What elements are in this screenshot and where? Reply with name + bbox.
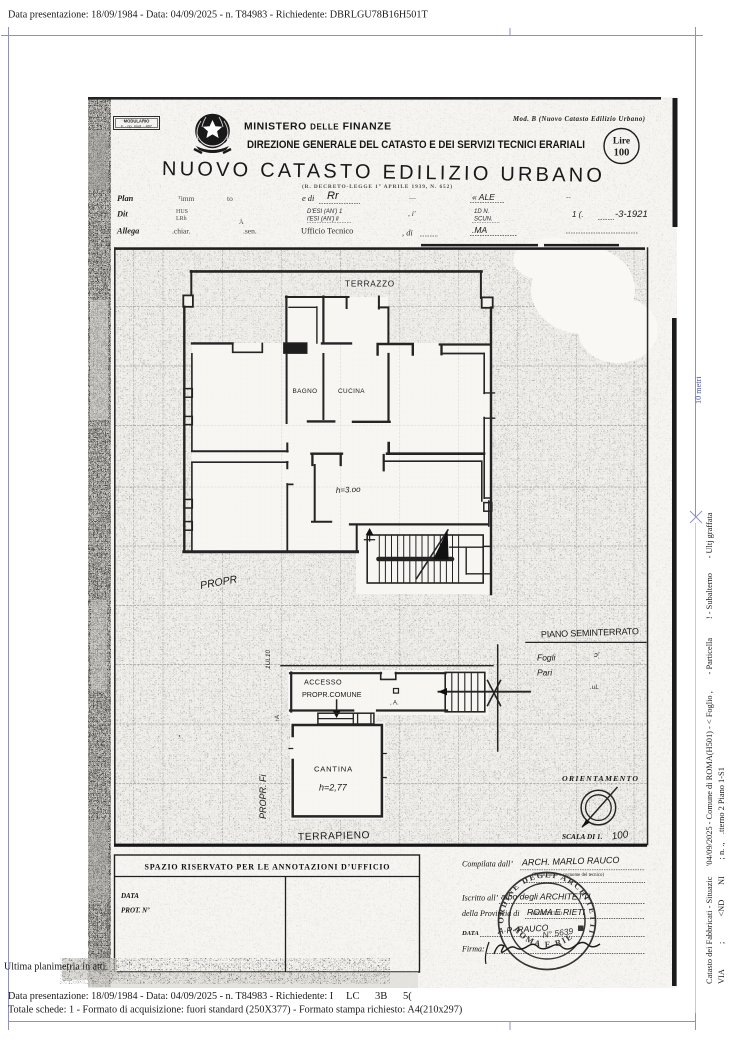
svg-text:.MA: .MA: [472, 225, 487, 235]
svg-text:MODULARIO: MODULARIO: [124, 119, 151, 124]
svg-text:VIA ; <N: VIA ; <ND NI ; n. ., .tterno 2 Piano 1-S…: [717, 767, 726, 984]
svg-text:Catasto dei Fabbricati - Situa: Catasto dei Fabbricati - Situazic '04/09…: [705, 512, 714, 984]
svg-text:ARCHITETTO: ARCHITETTO: [531, 912, 563, 917]
svg-text:ACCESSO: ACCESSO: [304, 678, 342, 687]
svg-text:(R. DECRETO-LEGGE 1° APRILE 19: (R. DECRETO-LEGGE 1° APRILE 1939, N. 652…: [302, 183, 452, 190]
svg-text:LRh: LRh: [176, 216, 187, 222]
svg-text:Allega: Allega: [116, 227, 139, 236]
svg-text:e di: e di: [302, 194, 315, 203]
svg-text:PROT. Nº: PROT. Nº: [121, 907, 150, 915]
svg-text:IV A UFFICIO TECNICO ROMA: IV A UFFICIO TECNICO ROMA: [106, 899, 111, 958]
svg-text:Totale schede: 1 - Formato di: Totale schede: 1 - Formato di acquisizio…: [8, 1005, 462, 1016]
svg-text:1D N.: 1D N.: [474, 209, 489, 215]
svg-text:l'ESI (AN') li: l'ESI (AN') li: [307, 217, 339, 223]
svg-text:LC: LC: [346, 991, 360, 1002]
svg-text:Lire: Lire: [613, 137, 630, 147]
svg-text:, i': , i': [408, 209, 416, 218]
svg-text:Data presentazione: 18/09/1984: Data presentazione: 18/09/1984 - Data: 0…: [8, 991, 334, 1002]
svg-text:-3-1921: -3-1921: [615, 209, 648, 220]
svg-text:Compilata dall’: Compilata dall’: [462, 860, 513, 869]
svg-text:TERRAZZO: TERRAZZO: [345, 280, 395, 289]
svg-text:h=2,77: h=2,77: [319, 783, 348, 793]
svg-text:SPAZIO RISERVATO PER LE ANNOTA: SPAZIO RISERVATO PER LE ANNOTAZIONI D’UF…: [145, 863, 390, 872]
svg-text:D'ESI (AN') 1: D'ESI (AN') 1: [307, 209, 342, 215]
svg-text:CANTINA: CANTINA: [314, 765, 353, 774]
svg-text:Å: Å: [239, 218, 244, 226]
svg-text:h=3.oo: h=3.oo: [336, 485, 362, 495]
svg-text:.chiar.: .chiar.: [172, 227, 190, 236]
svg-text:SCALA DI 1.: SCALA DI 1.: [562, 832, 603, 841]
svg-text:Dit: Dit: [116, 210, 128, 219]
svg-text:Fogli: Fogli: [537, 653, 557, 663]
svg-text:↑A: ↑A: [275, 715, 281, 722]
svg-text:F. - rip. mod. - 497: F. - rip. mod. - 497: [121, 124, 152, 128]
svg-text:Pari: Pari: [537, 668, 553, 678]
svg-text:TERRAPIENO: TERRAPIENO: [298, 830, 370, 843]
svg-text:to: to: [227, 194, 233, 203]
svg-text:1 (.: 1 (.: [572, 210, 584, 219]
svg-text:MINISTERO DELLE FINANZE: MINISTERO DELLE FINANZE: [244, 122, 391, 133]
svg-text:5(: 5(: [403, 991, 412, 1002]
svg-text:Iscritto all’: Iscritto all’: [461, 894, 499, 903]
svg-text:DIREZIONE GENERALE DEL CATASTO: DIREZIONE GENERALE DEL CATASTO E DEI SER…: [247, 139, 585, 151]
svg-text:BAGNO: BAGNO: [292, 388, 317, 395]
svg-text:—: —: [408, 194, 417, 202]
svg-text:100: 100: [614, 148, 630, 159]
svg-text:10 metri: 10 metri: [694, 376, 703, 404]
svg-text:ᵀimm: ᵀimm: [178, 194, 195, 203]
svg-text:ɔ': ɔ': [594, 650, 600, 659]
svg-text:Mod. B (Nuovo Catasto Edilizio: Mod. B (Nuovo Catasto Edilizio Urbano): [512, 116, 645, 123]
svg-text:PROPR. Fi: PROPR. Fi: [258, 773, 268, 819]
svg-text:1UL10: 1UL10: [265, 649, 272, 669]
svg-text:CUCINA: CUCINA: [338, 388, 365, 395]
svg-text:--: --: [566, 193, 571, 201]
svg-text:Ultima planimetria in atti: Ultima planimetria in atti: [4, 962, 106, 973]
svg-text:SCUN.: SCUN.: [474, 217, 493, 223]
svg-text:ORIENTAMENTO: ORIENTAMENTO: [562, 774, 638, 783]
svg-text:.sen.: .sen.: [243, 227, 257, 236]
svg-text:PROPR.COMUNE: PROPR.COMUNE: [302, 690, 362, 699]
svg-text:Rr: Rr: [327, 190, 340, 202]
svg-text:, di: , di: [402, 229, 413, 238]
svg-text:Data presentazione: 18/09/1984: Data presentazione: 18/09/1984 - Data: 0…: [8, 10, 428, 21]
svg-text:Firma:: Firma:: [461, 945, 485, 954]
svg-text:Plan: Plan: [117, 194, 134, 203]
svg-text:.uL: .uL: [590, 684, 599, 691]
svg-text:Ufficio Tecnico: Ufficio Tecnico: [301, 227, 353, 236]
svg-text:DATA: DATA: [120, 892, 139, 900]
svg-text:3B: 3B: [375, 991, 387, 1002]
svg-text:HUS: HUS: [176, 209, 188, 215]
svg-text:, A.: , A.: [390, 701, 399, 707]
svg-text:DATA: DATA: [461, 930, 479, 937]
svg-text:« ALE: « ALE: [472, 192, 495, 202]
